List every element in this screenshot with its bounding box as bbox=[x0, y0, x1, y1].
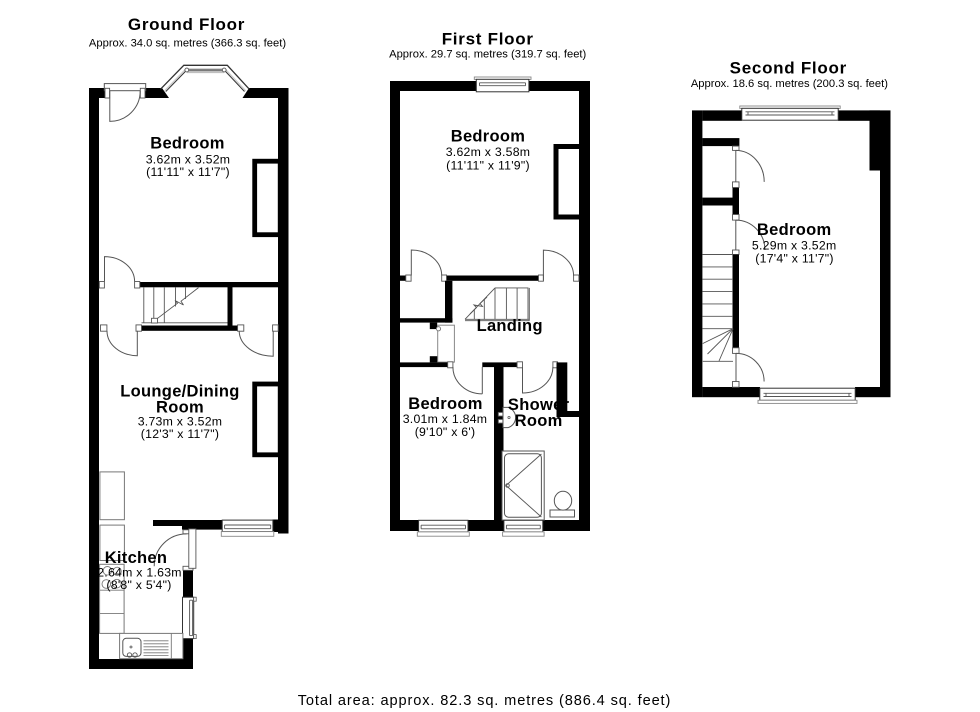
svg-text:Bedroom: Bedroom bbox=[150, 135, 225, 153]
svg-text:3.01m x 1.84m: 3.01m x 1.84m bbox=[403, 412, 488, 426]
svg-text:Approx. 18.6 sq. metres (200.3: Approx. 18.6 sq. metres (200.3 sq. feet) bbox=[691, 78, 888, 90]
svg-text:(11'11" x 11'9"): (11'11" x 11'9") bbox=[446, 159, 530, 173]
svg-text:Kitchen: Kitchen bbox=[105, 549, 168, 567]
svg-text:(11'11" x 11'7"): (11'11" x 11'7") bbox=[146, 165, 230, 179]
svg-text:Bedroom: Bedroom bbox=[408, 395, 483, 413]
svg-text:Landing: Landing bbox=[477, 317, 543, 335]
svg-text:3.62m x 3.58m: 3.62m x 3.58m bbox=[446, 145, 531, 159]
svg-text:Room: Room bbox=[515, 412, 563, 430]
svg-text:(12'3" x 11'7"): (12'3" x 11'7") bbox=[141, 427, 219, 441]
svg-text:(8'8" x 5'4"): (8'8" x 5'4") bbox=[106, 578, 171, 592]
svg-text:Bedroom: Bedroom bbox=[757, 221, 832, 239]
svg-text:Approx. 29.7 sq. metres (319.7: Approx. 29.7 sq. metres (319.7 sq. feet) bbox=[389, 49, 586, 61]
svg-text:(17'4" x 11'7"): (17'4" x 11'7") bbox=[755, 252, 833, 266]
svg-text:First Floor: First Floor bbox=[442, 29, 534, 48]
svg-text:Bedroom: Bedroom bbox=[451, 128, 526, 146]
svg-text:Approx. 34.0 sq. metres (366.3: Approx. 34.0 sq. metres (366.3 sq. feet) bbox=[89, 38, 286, 50]
svg-text:Total area: approx. 82.3 sq. m: Total area: approx. 82.3 sq. metres (886… bbox=[298, 693, 671, 709]
svg-text:(9'10" x 6'): (9'10" x 6') bbox=[415, 425, 476, 439]
svg-text:Second Floor: Second Floor bbox=[730, 58, 847, 77]
svg-text:5.29m x 3.52m: 5.29m x 3.52m bbox=[752, 238, 837, 252]
svg-text:Ground Floor: Ground Floor bbox=[128, 15, 245, 34]
